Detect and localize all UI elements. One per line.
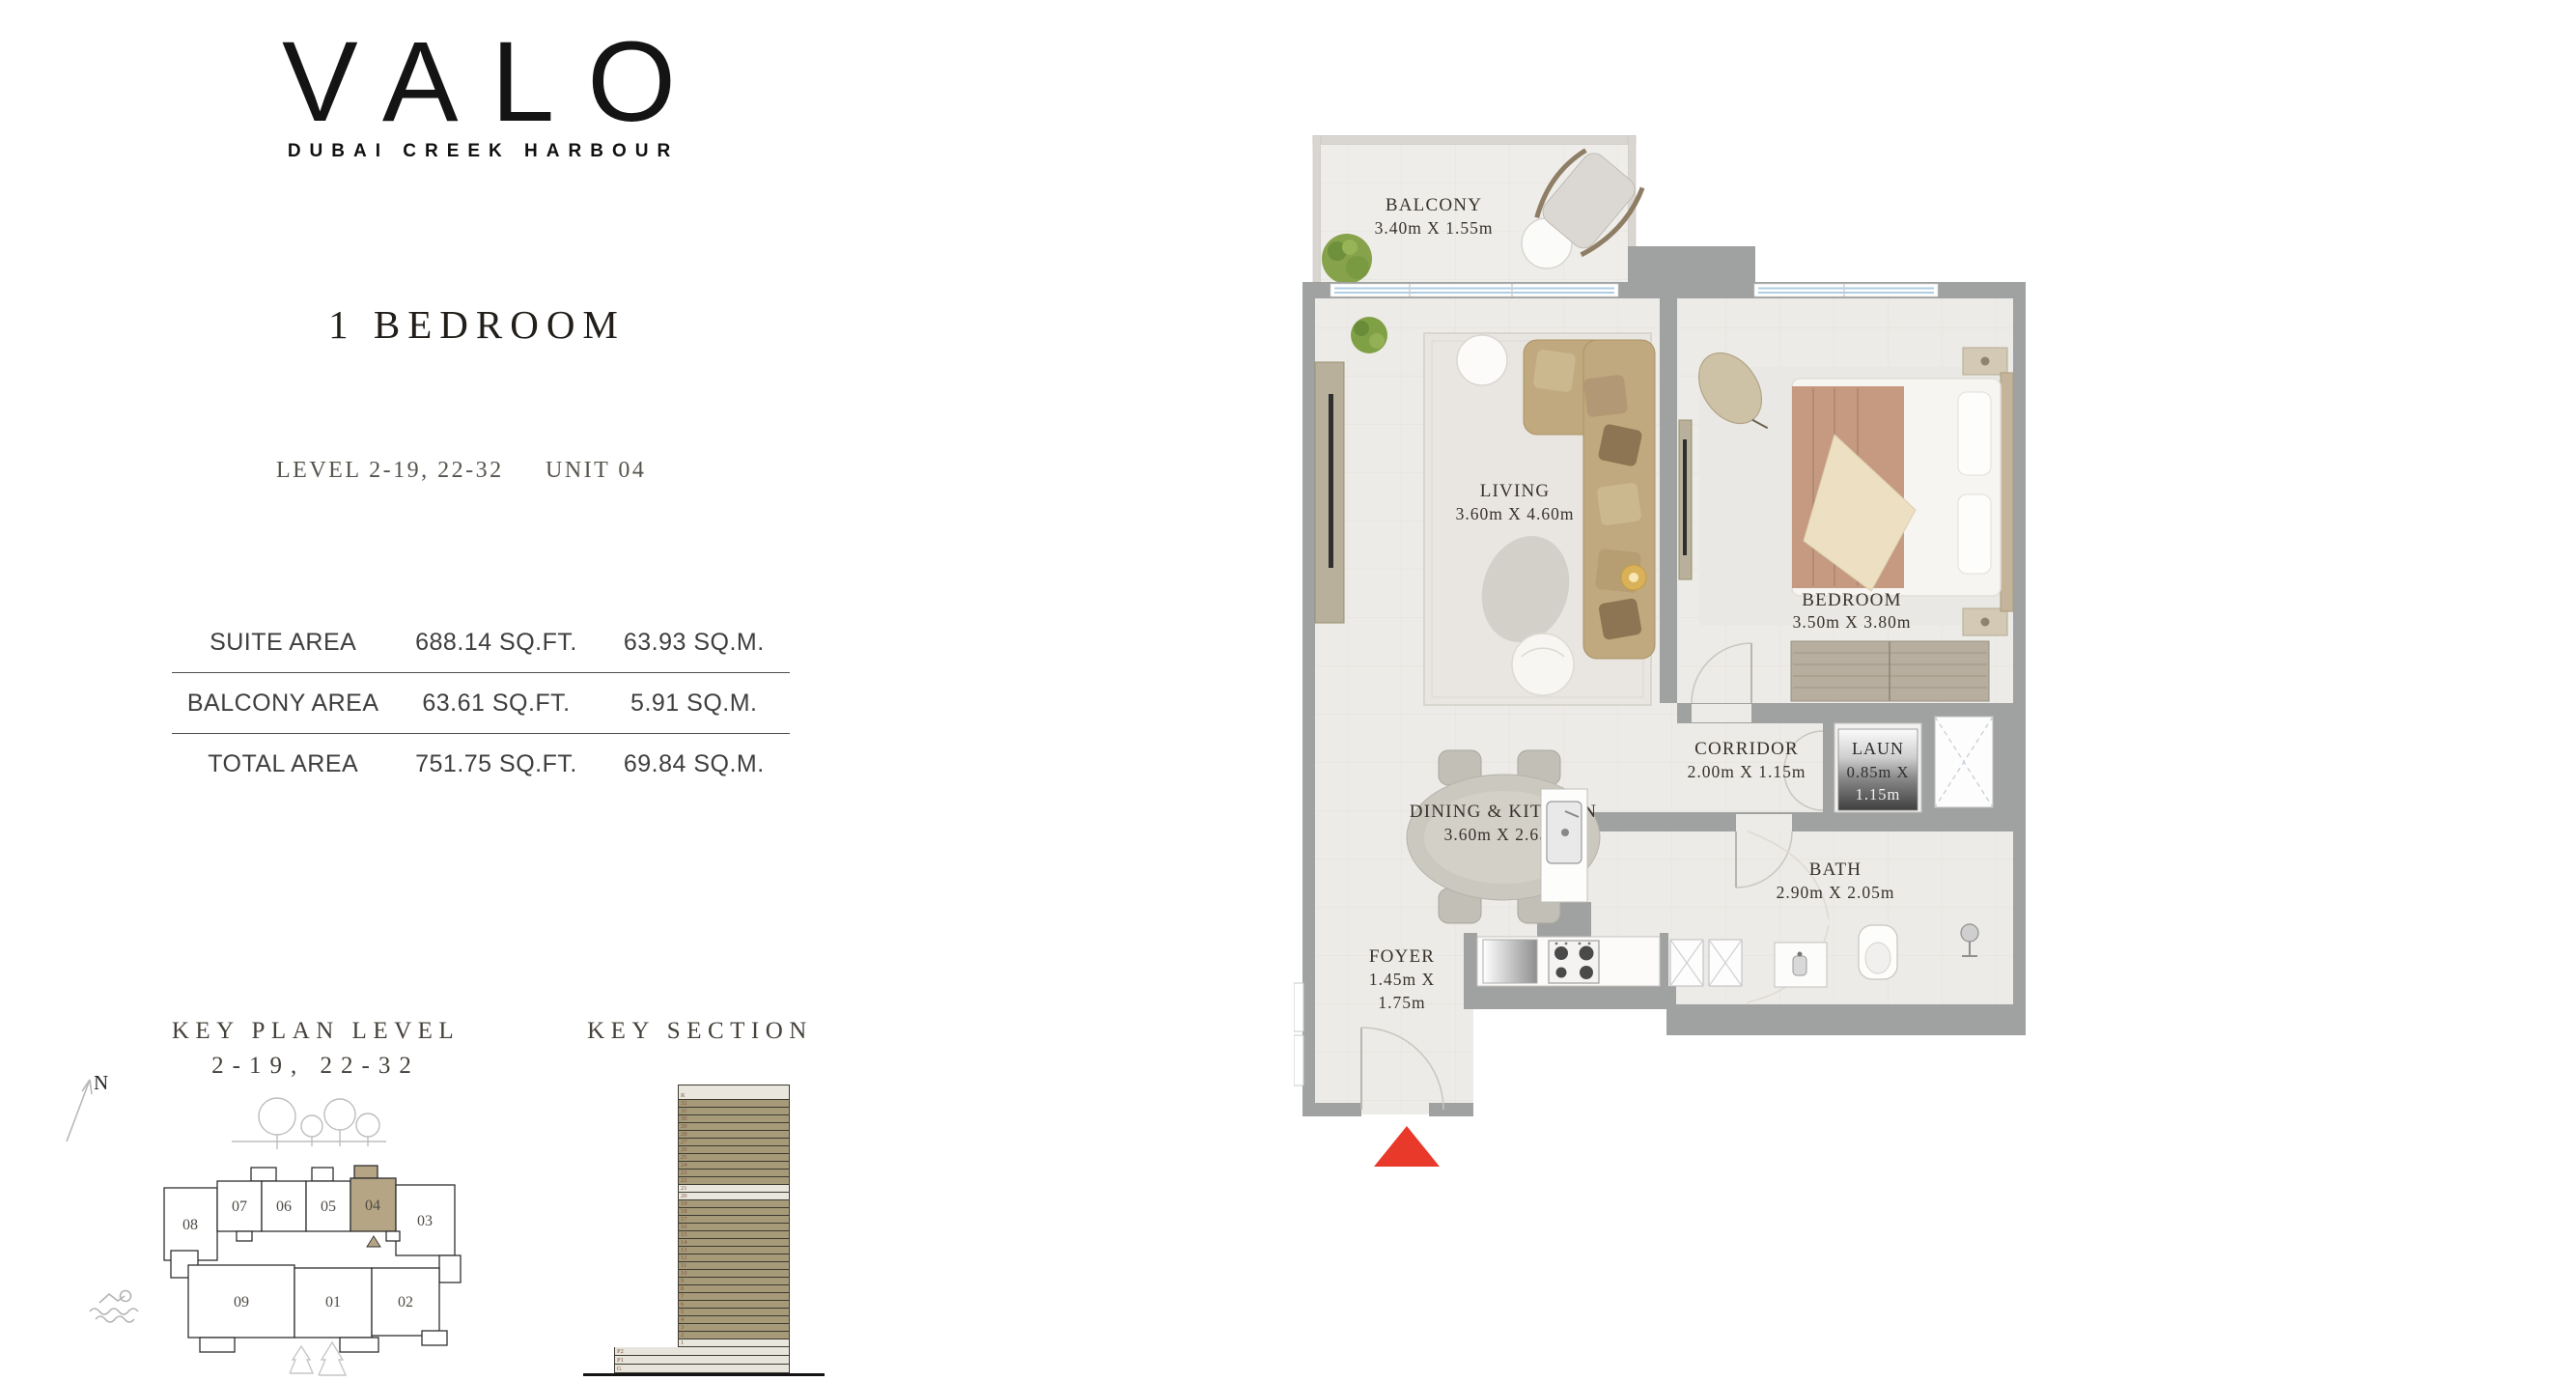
room-dims-bath: 2.90m X 2.05m — [1777, 883, 1895, 902]
entry-arrow-marker — [1374, 1126, 1440, 1167]
key-section-diagram: R323130292827262524232221201918171615141… — [575, 1053, 846, 1381]
key-section-podium-P1: P1 — [614, 1356, 790, 1365]
key-section-floor-2: 2 — [678, 1332, 790, 1339]
exterior-ledge — [1294, 1035, 1303, 1085]
table-row: SUITE AREA 688.14 SQ.FT. 63.93 SQ.M. — [172, 612, 790, 672]
key-section-floor-11: 11 — [678, 1262, 790, 1270]
key-section-floor-3: 3 — [678, 1324, 790, 1332]
wardrobe-icon — [1791, 641, 1989, 701]
room-label-bedroom: BEDROOM — [1802, 590, 1901, 610]
side-table-icon — [1457, 335, 1507, 385]
key-section-floor-32: 32 — [678, 1100, 790, 1108]
key-section-floor-19: 19 — [678, 1200, 790, 1208]
key-section-floor-10: 10 — [678, 1270, 790, 1278]
key-section-floor-20: 20 — [678, 1193, 790, 1200]
key-section-floor-27: 27 — [678, 1139, 790, 1146]
pine-trees-icon — [290, 1342, 346, 1375]
key-plan-entry-marker — [367, 1236, 380, 1247]
room-dims-foyer-1: 1.45m X — [1369, 970, 1435, 989]
brand-logo: VALO — [189, 23, 769, 143]
room-label-bath: BATH — [1809, 860, 1862, 880]
room-label-balcony: BALCONY — [1386, 195, 1482, 215]
key-section-floor-21: 21 — [678, 1185, 790, 1193]
key-plan-unit-number: 01 — [325, 1294, 341, 1311]
key-section-podium: P2P1G — [614, 1347, 790, 1373]
key-plan-unit-number-highlighted: 04 — [365, 1198, 380, 1214]
exterior-ledge — [1294, 983, 1303, 1031]
key-plan-unit-number: 02 — [398, 1294, 413, 1311]
key-section-floor-29: 29 — [678, 1123, 790, 1131]
room-label-living: LIVING — [1480, 481, 1551, 501]
key-section-tower: R323130292827262524232221201918171615141… — [678, 1085, 790, 1347]
key-section-floor-12: 12 — [678, 1254, 790, 1262]
kitchen-sink-column — [1541, 789, 1587, 902]
room-dims-corridor: 2.00m X 1.15m — [1688, 762, 1806, 781]
key-plan-unit-number: 08 — [182, 1217, 198, 1233]
key-section-podium-G: G — [614, 1365, 790, 1373]
key-section-floor-5: 5 — [678, 1309, 790, 1316]
floor-plan: BALCONY 3.40m X 1.55m — [1294, 135, 2037, 1178]
swimmer-icon — [90, 1291, 138, 1323]
area-row-label: TOTAL AREA — [172, 750, 394, 778]
area-row-label: BALCONY AREA — [172, 690, 394, 718]
key-section-floor-28: 28 — [678, 1131, 790, 1139]
key-section-floor-25: 25 — [678, 1154, 790, 1162]
page-title: 1 BEDROOM — [187, 301, 767, 348]
key-plan-building — [164, 1166, 461, 1352]
room-dims-balcony: 3.40m X 1.55m — [1375, 218, 1494, 238]
unit-number-label: UNIT 04 — [546, 458, 646, 484]
key-section-floor-1: 1 — [678, 1339, 790, 1347]
key-section-floor-R: R — [678, 1085, 790, 1100]
key-plan-unit-number: 03 — [417, 1213, 433, 1229]
structural-column — [1628, 246, 1755, 298]
key-section-floor-4: 4 — [678, 1316, 790, 1324]
room-label-foyer: FOYER — [1369, 946, 1435, 967]
fridge-icon — [1483, 940, 1537, 983]
key-plan-unit-number: 07 — [232, 1198, 247, 1215]
room-label-corridor: CORRIDOR — [1694, 739, 1799, 759]
key-section-floor-23: 23 — [678, 1170, 790, 1177]
brand-tagline: DUBAI CREEK HARBOUR — [189, 141, 769, 162]
balcony-plant-icon — [1322, 234, 1372, 284]
trees-icon — [232, 1098, 386, 1149]
room-dims-foyer-2: 1.75m — [1378, 993, 1425, 1012]
area-row-sqft: 688.14 SQ.FT. — [394, 629, 598, 657]
table-row: BALCONY AREA 63.61 SQ.FT. 5.91 SQ.M. — [172, 672, 790, 733]
area-row-sqm: 5.91 SQ.M. — [599, 690, 790, 718]
key-section-floor-7: 7 — [678, 1293, 790, 1301]
key-section-floor-14: 14 — [678, 1239, 790, 1247]
key-section-floor-9: 9 — [678, 1278, 790, 1285]
key-plan-diagram: N — [53, 1053, 478, 1381]
key-plan-unit-number: 05 — [321, 1198, 336, 1215]
key-section-floor-26: 26 — [678, 1146, 790, 1154]
stove-icon — [1549, 941, 1599, 983]
room-dims-laundry-1: 0.85m X — [1847, 763, 1910, 781]
area-row-sqm: 63.93 SQ.M. — [599, 629, 790, 657]
area-row-sqft: 63.61 SQ.FT. — [394, 690, 598, 718]
key-section-floor-8: 8 — [678, 1285, 790, 1293]
room-dims-bedroom: 3.50m X 3.80m — [1793, 612, 1912, 632]
room-dims-living: 3.60m X 4.60m — [1456, 504, 1575, 523]
key-plan-title: KEY PLAN LEVEL — [123, 1018, 509, 1045]
key-section-floor-6: 6 — [678, 1301, 790, 1309]
key-section-floor-22: 22 — [678, 1177, 790, 1185]
armchair-icon — [1512, 634, 1574, 695]
living-plant-icon — [1351, 317, 1387, 353]
key-section-title: KEY SECTION — [546, 1018, 854, 1045]
key-section-floor-18: 18 — [678, 1208, 790, 1216]
floorplan-brochure-page: VALO DUBAI CREEK HARBOUR 1 BEDROOM LEVEL… — [0, 0, 2576, 1381]
key-section-floor-30: 30 — [678, 1115, 790, 1123]
level-label: LEVEL 2-19, 22-32 — [276, 458, 504, 484]
area-table: SUITE AREA 688.14 SQ.FT. 63.93 SQ.M. BAL… — [172, 612, 790, 794]
laundry-closet: LAUN 0.85m X 1.15m — [1834, 723, 1921, 812]
key-section-floor-15: 15 — [678, 1231, 790, 1239]
key-section-floor-16: 16 — [678, 1224, 790, 1231]
area-row-label: SUITE AREA — [172, 629, 394, 657]
area-row-sqft: 751.75 SQ.FT. — [394, 750, 598, 778]
room-label-laundry: LAUN — [1852, 739, 1904, 758]
key-section-podium-P2: P2 — [614, 1347, 790, 1356]
room-dims-laundry-2: 1.15m — [1856, 785, 1901, 803]
key-section-floor-24: 24 — [678, 1162, 790, 1170]
table-row: TOTAL AREA 751.75 SQ.FT. 69.84 SQ.M. — [172, 733, 790, 794]
service-shaft — [1935, 717, 1993, 807]
key-section-floor-17: 17 — [678, 1216, 790, 1224]
key-plan-unit-number: 06 — [276, 1198, 292, 1215]
key-plan-unit-number: 09 — [234, 1294, 249, 1311]
balcony-area: BALCONY 3.40m X 1.55m — [1313, 135, 1648, 284]
key-section-floor-13: 13 — [678, 1247, 790, 1254]
area-row-sqm: 69.84 SQ.M. — [599, 750, 790, 778]
north-label: N — [94, 1071, 108, 1094]
tv-icon — [1329, 394, 1333, 568]
north-arrow-icon — [67, 1080, 92, 1141]
key-section-floor-31: 31 — [678, 1108, 790, 1115]
key-section-ground-line — [583, 1373, 825, 1376]
